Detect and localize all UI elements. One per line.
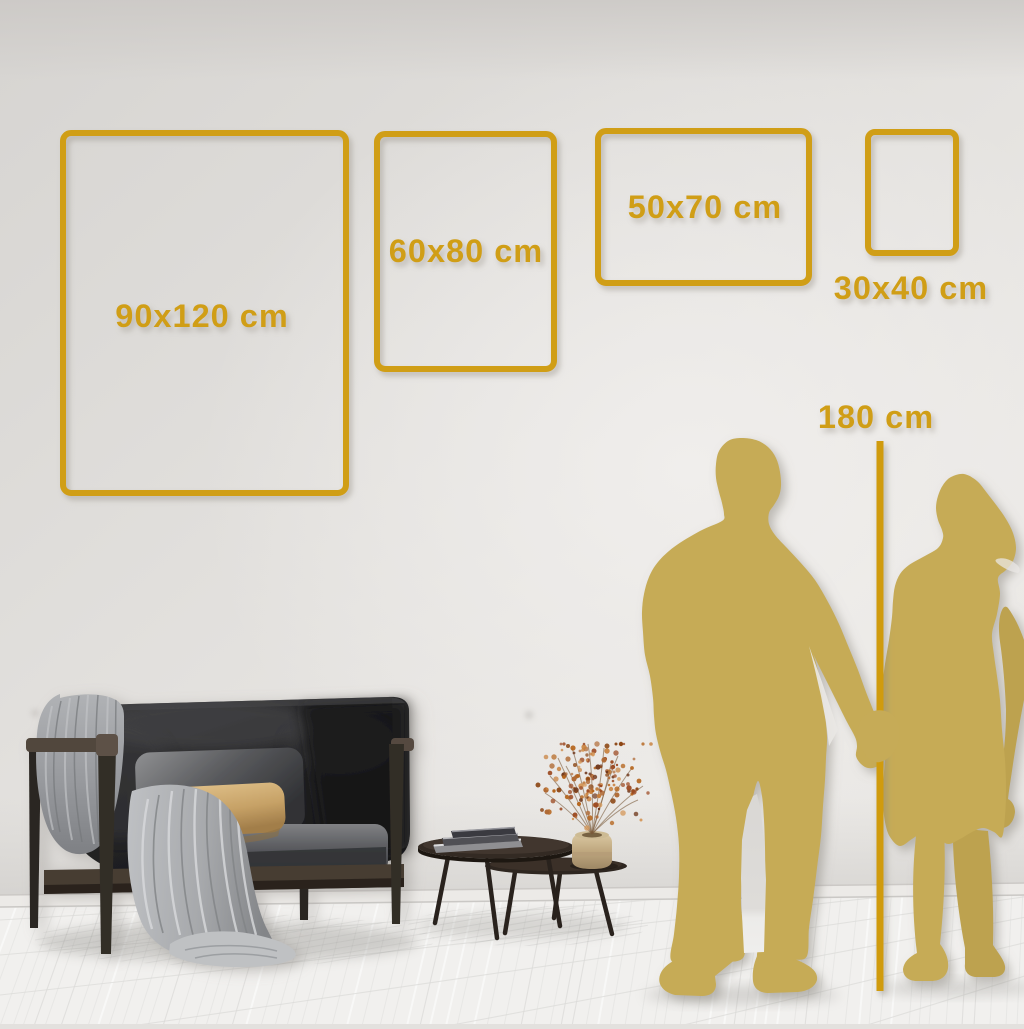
svg-text:30x40 cm: 30x40 cm bbox=[834, 270, 988, 306]
svg-text:180 cm: 180 cm bbox=[818, 399, 934, 435]
svg-text:90x120 cm: 90x120 cm bbox=[115, 298, 288, 334]
svg-text:60x80 cm: 60x80 cm bbox=[389, 233, 543, 269]
svg-text:50x70 cm: 50x70 cm bbox=[628, 189, 782, 225]
